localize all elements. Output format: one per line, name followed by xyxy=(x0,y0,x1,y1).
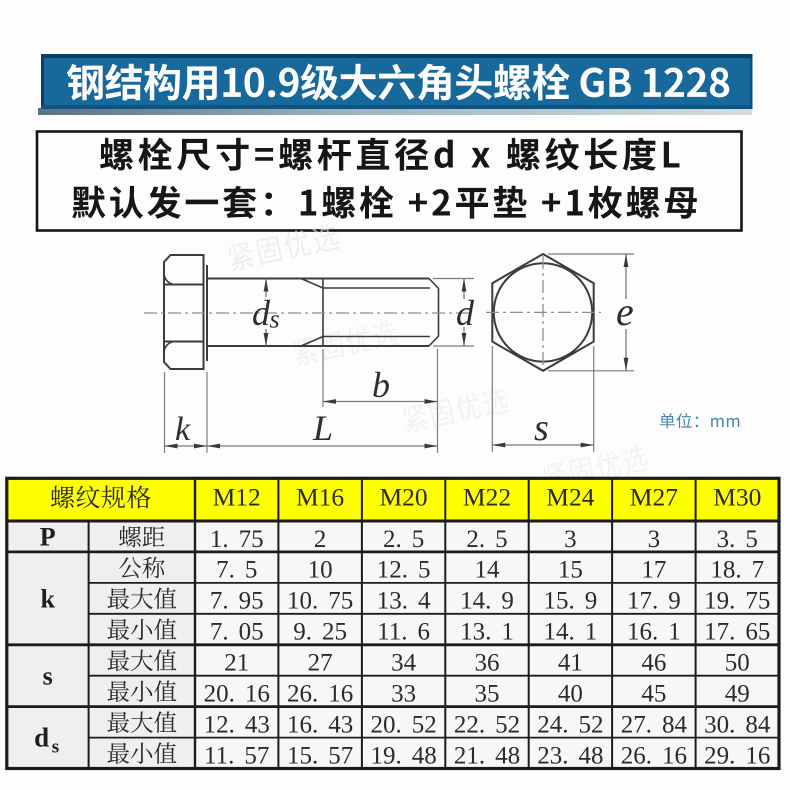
svg-text:b: b xyxy=(372,365,390,405)
svg-text:34: 34 xyxy=(391,650,417,677)
svg-text:d: d xyxy=(456,293,475,333)
svg-text:16.1: 16.1 xyxy=(627,619,681,646)
svg-text:13.4: 13.4 xyxy=(377,588,431,615)
svg-text:10: 10 xyxy=(308,557,333,584)
svg-text:M30: M30 xyxy=(713,483,761,512)
svg-text:M22: M22 xyxy=(463,483,511,512)
svg-text:13.1: 13.1 xyxy=(460,619,514,646)
svg-text:d: d xyxy=(252,293,271,333)
svg-text:11.6: 11.6 xyxy=(377,619,430,646)
svg-text:M24: M24 xyxy=(546,483,594,512)
svg-text:36: 36 xyxy=(475,650,500,677)
svg-text:2: 2 xyxy=(314,526,327,553)
svg-text:14.9: 14.9 xyxy=(460,588,514,615)
svg-text:s: s xyxy=(43,662,53,691)
svg-text:49: 49 xyxy=(725,681,750,708)
svg-text:21: 21 xyxy=(224,650,249,677)
svg-text:d: d xyxy=(34,723,49,753)
svg-text:27: 27 xyxy=(308,650,333,677)
svg-text:50: 50 xyxy=(725,650,750,677)
svg-text:3: 3 xyxy=(564,526,577,553)
svg-text:M16: M16 xyxy=(296,483,344,512)
svg-text:M12: M12 xyxy=(213,483,261,512)
svg-text:33: 33 xyxy=(391,681,416,708)
svg-text:L: L xyxy=(312,408,333,448)
svg-text:s: s xyxy=(52,737,59,758)
svg-text:3: 3 xyxy=(648,526,661,553)
svg-text:46: 46 xyxy=(641,650,666,677)
svg-text:15: 15 xyxy=(558,557,583,584)
svg-text:P: P xyxy=(40,523,56,552)
svg-text:M27: M27 xyxy=(630,483,678,512)
svg-text:M20: M20 xyxy=(380,483,428,512)
svg-text:17.9: 17.9 xyxy=(627,588,681,615)
svg-text:e: e xyxy=(616,289,634,334)
svg-text:s: s xyxy=(270,305,280,334)
svg-text:12.5: 12.5 xyxy=(377,557,431,584)
svg-text:k: k xyxy=(175,411,191,448)
svg-text:45: 45 xyxy=(641,681,666,708)
svg-text:s: s xyxy=(534,407,549,449)
svg-text:41: 41 xyxy=(558,650,583,677)
svg-text:18.7: 18.7 xyxy=(710,557,764,584)
svg-text:40: 40 xyxy=(558,681,583,708)
svg-text:14: 14 xyxy=(475,557,501,584)
svg-text:k: k xyxy=(40,584,55,613)
svg-text:14.1: 14.1 xyxy=(544,619,598,646)
svg-text:15.9: 15.9 xyxy=(544,588,598,615)
svg-text:35: 35 xyxy=(475,681,500,708)
svg-text:17: 17 xyxy=(641,557,666,584)
